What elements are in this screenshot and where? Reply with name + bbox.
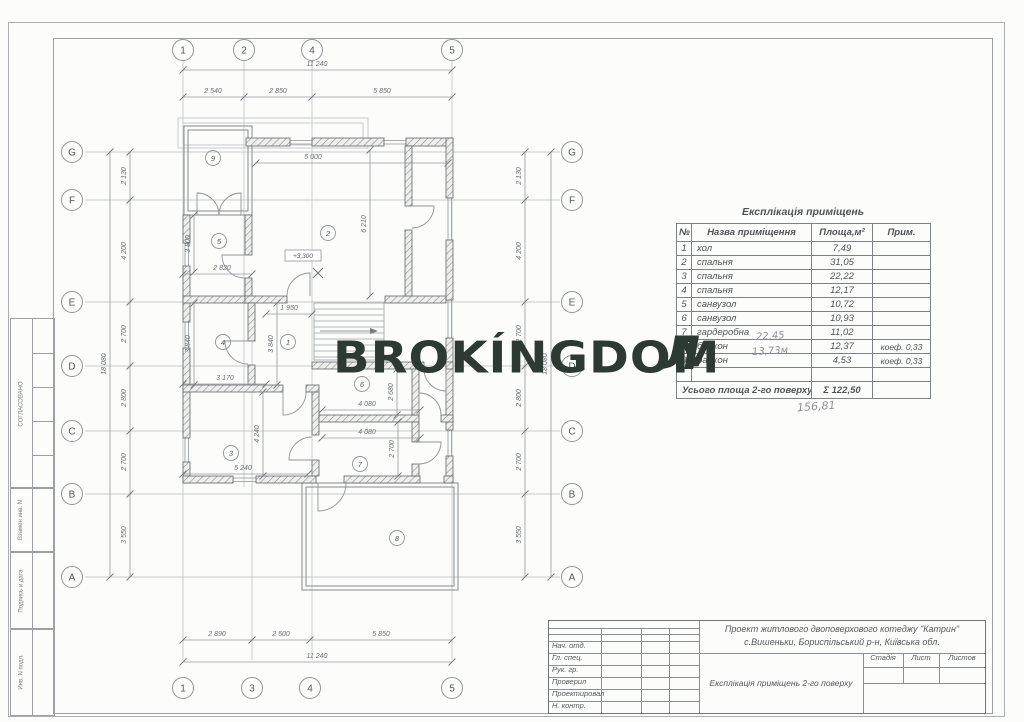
dim-label: 2 700 [121, 453, 128, 472]
titleblock-role-label: Гл. спец. [552, 653, 583, 665]
stamp-replace-inv: Взамен инв. N [10, 487, 55, 553]
dim-label: 5 850 [372, 631, 390, 638]
grid-bubble-label: A [69, 573, 76, 584]
dim-label: +3,300 [293, 253, 313, 260]
explication-cell: санвузол [692, 298, 812, 312]
dim-label: 4 240 [254, 425, 261, 443]
col-header-note: Прим. [873, 224, 931, 242]
grid-bubble-label: F [69, 196, 75, 207]
dim-label: 3 840 [268, 335, 275, 353]
dim-label: 2 850 [268, 88, 287, 95]
dim-label: 3 800 [185, 235, 192, 253]
explication-cell: 22,22 [812, 270, 873, 284]
explication-cell: 6 [677, 312, 692, 326]
grid-bubble-label: E [569, 298, 576, 309]
explication-cell [873, 326, 931, 340]
dim-label: 5 240 [234, 465, 252, 472]
project-name-line1: Проект житлового двоповерхового котеджу … [699, 623, 985, 636]
dim-label: 3 840 [185, 335, 192, 353]
explication-cell [873, 284, 931, 298]
dim-label: 5 850 [373, 88, 391, 95]
handwritten-total: 156,81 [797, 399, 836, 415]
grid-bubble-label: 5 [449, 46, 455, 57]
stamp-inv-no: Инв. N подл. [10, 628, 55, 716]
explication-cell [873, 242, 931, 256]
dim-label: 3 170 [216, 375, 234, 382]
dim-label: 8 [395, 534, 400, 543]
col-header-area: Площа,м² [812, 224, 873, 242]
dim-label: 6 210 [361, 215, 368, 233]
explication-cell: 4,53 [812, 354, 873, 368]
col-header-room-name: Назва приміщення [692, 224, 812, 242]
grid-bubble-label: C [568, 427, 575, 438]
grid-bubble-label: G [68, 148, 76, 159]
explication-cell: 1 [677, 242, 692, 256]
dim-label: 18 080 [101, 353, 108, 375]
grid-bubble-label: E [69, 298, 76, 309]
titleblock-role-label: Рук. гр. [552, 665, 578, 677]
explication-cell: 31,05 [812, 256, 873, 270]
grid-bubble-label: 3 [249, 684, 255, 695]
titleblock-role-label: Проектировал [552, 689, 604, 701]
explication-cell: 12,37 [812, 340, 873, 354]
explication-cell: 10,93 [812, 312, 873, 326]
sheet-column-header: Лист [903, 653, 939, 667]
stamp-approved-label: СОГЛАСОВАНО [11, 319, 32, 488]
explication-cell: 5 [677, 298, 692, 312]
dim-label: 4 [221, 338, 225, 347]
total-value: Σ 122,50 [812, 382, 873, 399]
grid-bubble-label: A [569, 573, 576, 584]
dim-label: 4 200 [121, 242, 128, 260]
grid-bubble-label: D [68, 362, 75, 373]
dim-label: 2 [325, 229, 331, 238]
stage-column-header: Стадія [863, 653, 903, 667]
drawing-sheet: 12451345GGFFEEDDCCBBAA2 5402 8505 8502 8… [0, 0, 1024, 722]
explication-cell: 10,72 [812, 298, 873, 312]
title-block: Проект житлового двоповерхового котеджу … [548, 620, 986, 714]
dim-label: 3 [229, 449, 234, 458]
handwritten-note-row8: 22,45 [756, 330, 785, 343]
dim-label: 4 200 [516, 242, 523, 260]
stamp-replace-inv-label: Взамен инв. N [11, 488, 32, 552]
dim-label: 2 130 [121, 167, 128, 186]
dim-label: 1 950 [280, 305, 298, 312]
explication-cell: спальня [692, 256, 812, 270]
stamp-inv-no-label: Инв. N подл. [11, 629, 32, 715]
explication-cell [873, 270, 931, 284]
dim-label: 2 500 [271, 631, 290, 638]
explication-title: Експлікація приміщень [676, 206, 930, 218]
project-name: Проект житлового двоповерхового котеджу … [699, 623, 985, 649]
explication-row: 1хол7,49 [677, 242, 931, 256]
explication-row: 4спальня12,17 [677, 284, 931, 298]
grid-bubble-label: 2 [241, 46, 247, 57]
explication-cell: 11,02 [812, 326, 873, 340]
grid-bubble-label: 1 [180, 46, 186, 57]
document-title: Експлікація приміщень 2-го поверху [699, 653, 863, 713]
titleblock-role-label: Нач. отд. [552, 641, 586, 653]
dim-label: 11 240 [307, 61, 328, 68]
grid-bubble-label: B [69, 490, 76, 501]
explication-cell: 7,49 [812, 242, 873, 256]
dim-label: 5 000 [304, 154, 322, 161]
dim-label: 2 130 [516, 167, 523, 186]
grid-bubble-label: B [569, 490, 576, 501]
grid-bubble-label: 1 [180, 684, 186, 695]
grid-bubble-label: G [568, 148, 576, 159]
stamp-approved: СОГЛАСОВАНО [10, 318, 55, 489]
explication-row: 3спальня22,22 [677, 270, 931, 284]
total-row: Усього площа 2-го поверху Σ 122,50 [677, 382, 931, 399]
dim-label: 2 700 [516, 453, 523, 472]
explication-cell: спальня [692, 270, 812, 284]
dim-label: 2 700 [389, 440, 396, 459]
dim-label: 9 [211, 154, 216, 163]
explication-cell: хол [692, 242, 812, 256]
dim-label: 2 540 [203, 88, 222, 95]
sheets-column-header: Листов [939, 653, 985, 667]
grid-bubble-label: 4 [309, 46, 315, 57]
dim-label: 2 800 [121, 389, 128, 408]
grid-bubble-label: C [68, 427, 75, 438]
dim-label: 5 [217, 237, 222, 246]
explication-cell [873, 256, 931, 270]
handwritten-note-row9: 13,73м [752, 345, 789, 358]
grid-bubble-label: 4 [307, 684, 313, 695]
titleblock-role-label: Н. контр. [552, 701, 586, 713]
explication-row: 6санвузол10,93 [677, 312, 931, 326]
section-symbol [313, 268, 323, 278]
dim-label: 7 [358, 460, 363, 469]
explication-row: 5санвузол10,72 [677, 298, 931, 312]
dim-label: 11 240 [307, 653, 328, 660]
total-label: Усього площа 2-го поверху [677, 382, 812, 399]
explication-cell: коеф. 0,33 [873, 340, 931, 354]
explication-cell: 2 [677, 256, 692, 270]
stamp-sign-date-label: Подпись и дата [11, 552, 32, 629]
dim-label: 1 [286, 338, 290, 347]
dim-label: 3 550 [516, 526, 523, 544]
stamp-sign-date: Подпись и дата [10, 551, 55, 630]
dim-label: 2 680 [388, 383, 395, 402]
grid-bubble-label: 5 [449, 684, 455, 695]
dim-label: 4 080 [358, 429, 376, 436]
explication-cell: 3 [677, 270, 692, 284]
dim-label: 2 800 [516, 389, 523, 408]
col-header-number: № [677, 224, 692, 242]
dim-label: 4 080 [358, 401, 376, 408]
explication-cell [873, 298, 931, 312]
grid-bubble-label: F [569, 196, 575, 207]
project-name-line2: с.Вишеньки, Бориспільський р-н, Київська… [699, 636, 985, 649]
dim-label: 3 550 [121, 526, 128, 544]
titleblock-role-label: Проверил [552, 677, 586, 689]
explication-cell: коеф. 0,33 [873, 354, 931, 368]
dim-label: 2 820 [212, 265, 231, 272]
dim-label: 2 700 [121, 325, 128, 344]
explication-cell: 12,17 [812, 284, 873, 298]
explication-cell: санвузол [692, 312, 812, 326]
dim-label: 2 890 [207, 631, 226, 638]
explication-cell: спальня [692, 284, 812, 298]
explication-cell: 4 [677, 284, 692, 298]
explication-row: 2спальня31,05 [677, 256, 931, 270]
explication-cell [873, 312, 931, 326]
